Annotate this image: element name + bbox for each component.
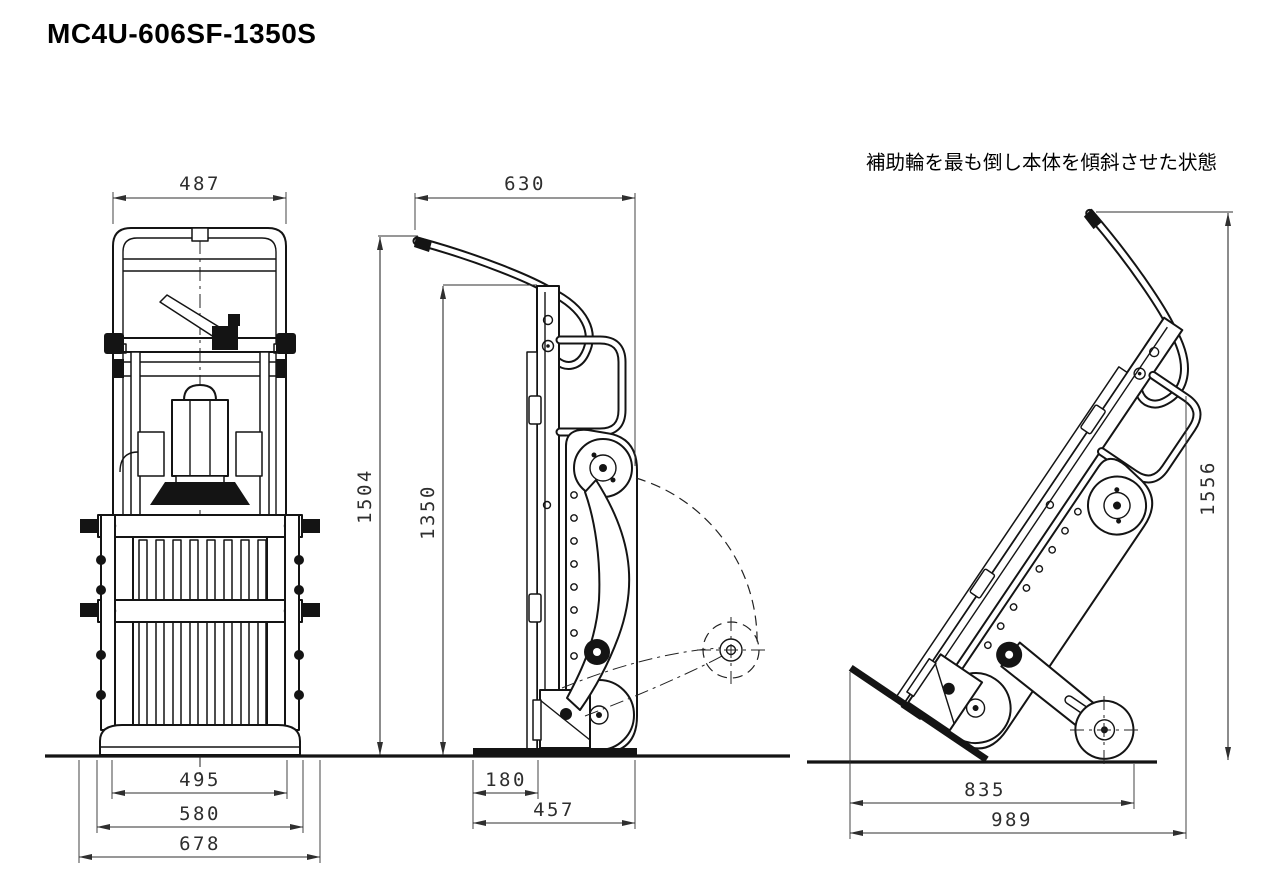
dim-front-base-inner-width: 495 xyxy=(179,769,221,791)
dim-side-toe-depth: 180 xyxy=(485,769,527,791)
front-base-plate xyxy=(100,725,300,755)
dim-front-overall-width: 678 xyxy=(179,833,221,855)
dim-tilted-height: 1556 xyxy=(1197,460,1219,516)
dim-side-overall-height: 1504 xyxy=(354,468,376,524)
side-view: 630 1504 1350 180 457 xyxy=(354,173,765,829)
technical-drawing-canvas: 487 495 580 678 xyxy=(0,0,1280,875)
dim-tilted-wheel-span: 835 xyxy=(964,779,1006,801)
front-view: 487 495 580 678 xyxy=(79,173,320,863)
front-track-assembly xyxy=(133,537,267,750)
dim-side-body-height: 1350 xyxy=(417,484,439,540)
tilted-view: 1556 835 989 xyxy=(800,207,1280,839)
front-hydraulic-unit xyxy=(120,385,262,505)
dim-side-top-depth: 630 xyxy=(504,173,546,195)
dim-front-handle-width: 487 xyxy=(179,173,221,195)
dim-front-base-mid-width: 580 xyxy=(179,803,221,825)
dim-side-base-depth: 457 xyxy=(533,799,575,821)
dim-tilted-overall-depth: 989 xyxy=(991,809,1033,831)
